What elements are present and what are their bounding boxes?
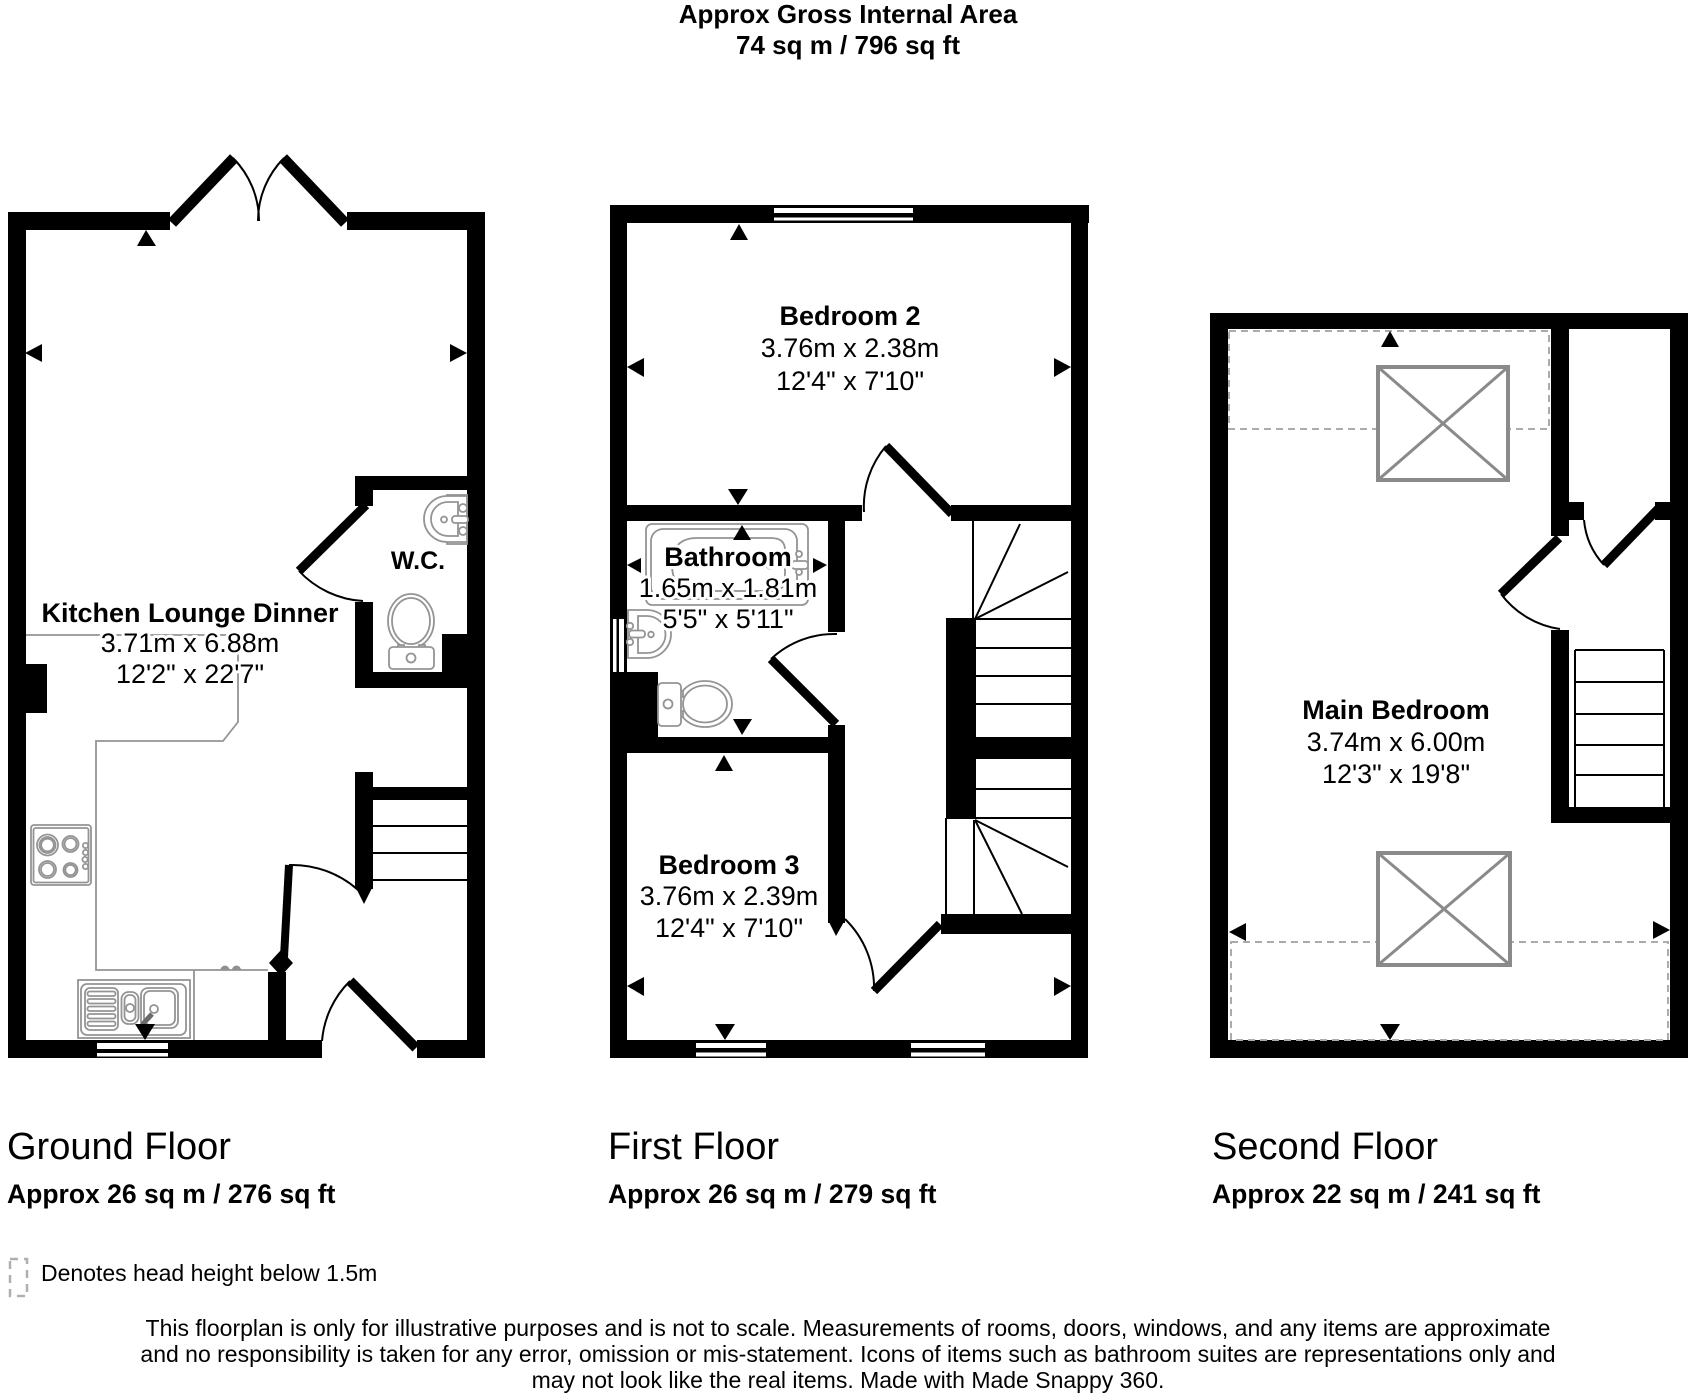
svg-text:3.74m x 6.00m: 3.74m x 6.00m (1307, 727, 1486, 757)
svg-text:This floorplan is only for ill: This floorplan is only for illustrative … (146, 1315, 1551, 1341)
svg-text:12'3" x 19'8": 12'3" x 19'8" (1322, 759, 1470, 789)
svg-text:5'5" x 5'11": 5'5" x 5'11" (662, 604, 793, 634)
svg-text:may not look like the real ite: may not look like the real items. Made w… (532, 1367, 1165, 1393)
svg-text:Main Bedroom: Main Bedroom (1302, 695, 1490, 725)
svg-text:and no responsibility is taken: and no responsibility is taken for any e… (140, 1341, 1555, 1367)
svg-text:Bathroom: Bathroom (664, 542, 792, 572)
svg-text:1.65m x 1.81m: 1.65m x 1.81m (639, 573, 818, 603)
svg-text:Bedroom 3: Bedroom 3 (658, 850, 799, 880)
svg-text:Second Floor: Second Floor (1212, 1126, 1438, 1168)
svg-text:Ground Floor: Ground Floor (7, 1126, 231, 1168)
svg-text:12'4" x 7'10": 12'4" x 7'10" (655, 913, 803, 943)
svg-text:Bedroom 2: Bedroom 2 (779, 301, 920, 331)
svg-text:3.76m x 2.38m: 3.76m x 2.38m (761, 333, 940, 363)
svg-text:Approx 22 sq m / 241 sq ft: Approx 22 sq m / 241 sq ft (1212, 1179, 1541, 1209)
svg-text:12'2" x 22'7": 12'2" x 22'7" (116, 659, 264, 689)
svg-text:Approx 26 sq m / 276 sq ft: Approx 26 sq m / 276 sq ft (7, 1179, 336, 1209)
svg-text:3.71m x 6.88m: 3.71m x 6.88m (101, 628, 280, 658)
svg-text:Denotes head height below 1.5m: Denotes head height below 1.5m (41, 1260, 377, 1286)
svg-text:Kitchen Lounge Dinner: Kitchen Lounge Dinner (42, 598, 339, 628)
svg-text:3.76m x 2.39m: 3.76m x 2.39m (640, 881, 819, 911)
svg-text:W.C.: W.C. (391, 547, 445, 575)
svg-text:12'4" x 7'10": 12'4" x 7'10" (776, 366, 924, 396)
svg-text:Approx 26 sq m / 279 sq ft: Approx 26 sq m / 279 sq ft (608, 1179, 937, 1209)
svg-text:74 sq m / 796 sq ft: 74 sq m / 796 sq ft (736, 30, 960, 60)
svg-text:Approx Gross Internal Area: Approx Gross Internal Area (679, 0, 1018, 29)
svg-text:First Floor: First Floor (608, 1126, 779, 1168)
